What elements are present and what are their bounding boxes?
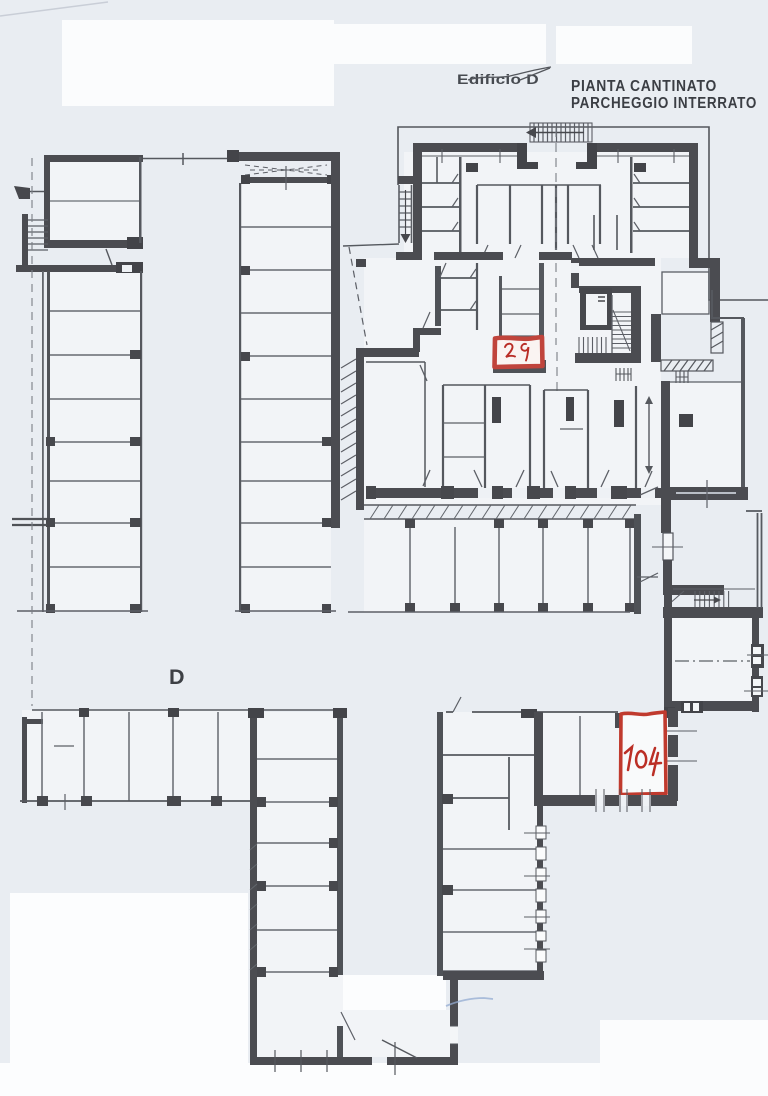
svg-text:PIANTA CANTINATO: PIANTA CANTINATO xyxy=(571,78,717,95)
svg-text:PARCHEGGIO INTERRATO: PARCHEGGIO INTERRATO xyxy=(571,95,757,112)
svg-text:D: D xyxy=(169,665,185,689)
